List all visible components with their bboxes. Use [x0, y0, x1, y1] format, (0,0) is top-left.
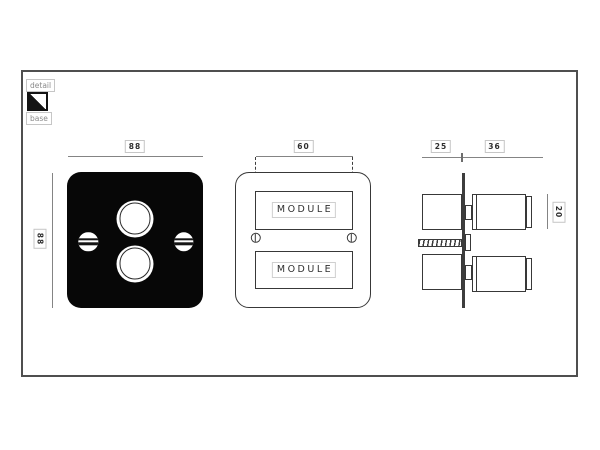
side-knob-depth-label: 36 — [484, 140, 504, 153]
knob-body-bottom — [472, 256, 526, 292]
dimension-tick — [461, 153, 462, 162]
front-width-dimension-label: 88 — [125, 140, 145, 153]
technical-drawing-canvas: detail base 88 88 60 — [0, 0, 600, 450]
dimmer-knob-bottom — [117, 245, 154, 282]
screw-nut — [465, 234, 472, 251]
module-width-dimension-line — [256, 156, 353, 157]
knob-ring — [119, 248, 151, 280]
knob-cap-top — [526, 196, 533, 228]
legend-detail-label: detail — [26, 79, 55, 92]
front-height-dimension-line — [52, 173, 53, 308]
screw-slot — [351, 234, 352, 242]
screw-slot — [79, 243, 98, 246]
black-front-plate — [67, 172, 203, 308]
knob-height-dimension-line — [547, 194, 548, 229]
threaded-screw — [418, 239, 463, 247]
screw-right — [174, 232, 193, 251]
knob-cap-bottom — [526, 258, 533, 290]
back-box-bottom — [422, 254, 462, 291]
legend-base-label: base — [26, 112, 52, 125]
front-width-dimension-line — [68, 156, 203, 157]
knob-flange-line — [476, 195, 477, 229]
module-slot-bottom-label: MODULE — [272, 262, 336, 278]
side-box-depth-label: 25 — [431, 140, 451, 153]
front-height-dimension-label: 88 — [34, 228, 47, 248]
dimmer-knob-top — [117, 200, 154, 237]
detail-base-swatch-icon — [27, 92, 48, 111]
module-slot-top-label: MODULE — [272, 202, 336, 218]
side-depth-dimension-line — [422, 157, 543, 158]
screw-left — [79, 232, 98, 251]
screw-slot — [174, 238, 193, 241]
module-width-dimension-label: 60 — [293, 140, 313, 153]
screw-slot — [174, 243, 193, 246]
knob-ring — [119, 203, 151, 235]
screw-slot — [255, 234, 256, 242]
knob-body-top — [472, 194, 526, 230]
knob-flange-line — [476, 257, 477, 291]
screw-slot — [79, 238, 98, 241]
back-box-top — [422, 194, 462, 230]
knob-height-dimension-label: 20 — [552, 202, 565, 222]
